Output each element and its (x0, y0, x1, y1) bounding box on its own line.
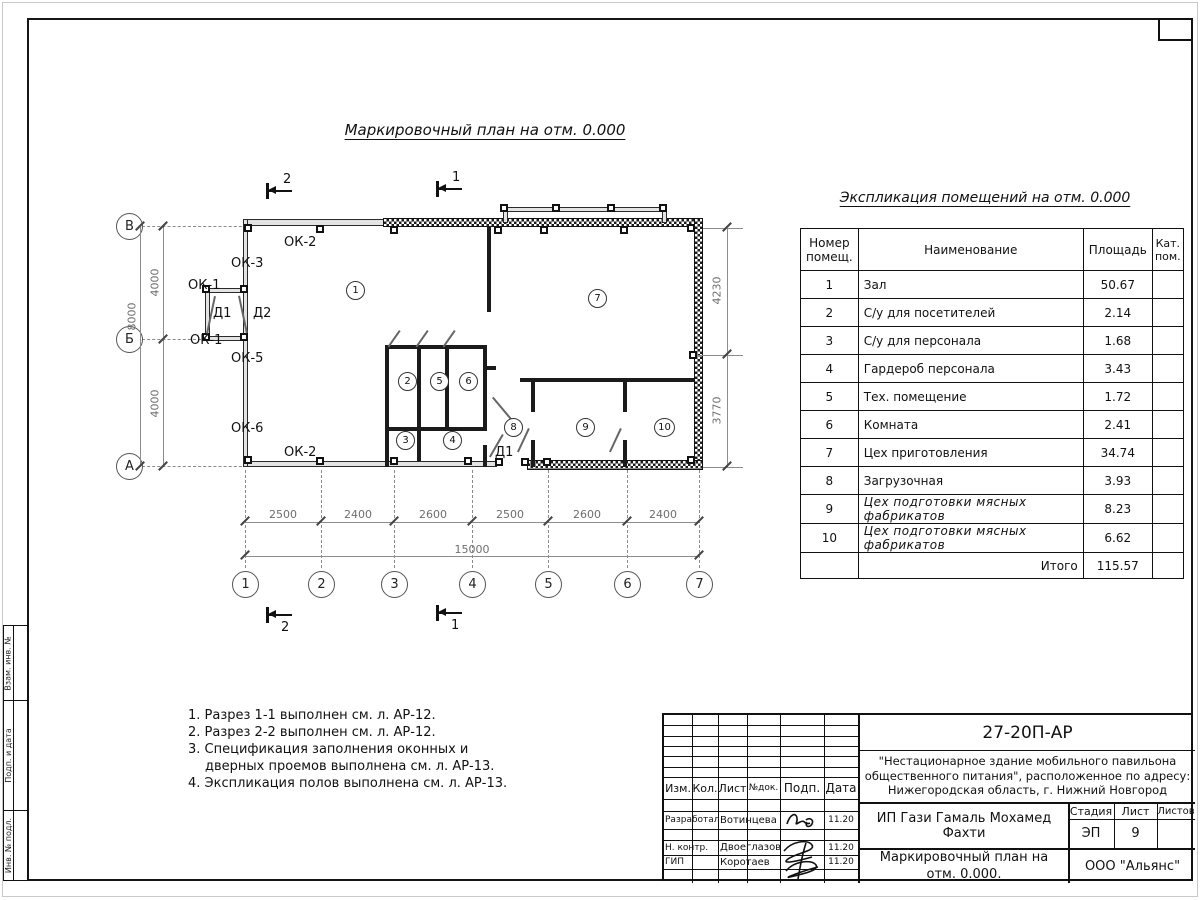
dim-2400-1: 2400 (328, 508, 388, 521)
table-row: 4Гардероб персонала3.43 (801, 355, 1184, 383)
room-mark-5: 5 (430, 372, 449, 391)
column-mark (521, 458, 529, 466)
column-mark (494, 226, 502, 234)
dim-2600-2: 2600 (557, 508, 617, 521)
room-mark-10: 10 (654, 418, 675, 437)
corner-stamp-box (1158, 18, 1193, 41)
dim-3770: 3770 (711, 391, 724, 431)
window-label-ok2-bottom: ОК-2 (284, 445, 316, 460)
table-row: 1Зал50.67 (801, 271, 1184, 299)
partition (623, 382, 627, 412)
door-label-d1-bottom: Д1 (495, 445, 513, 460)
tb-date-gip: 11.20 (824, 855, 858, 869)
column-mark (689, 351, 697, 359)
tb-col-kol: Кол. (692, 777, 718, 799)
partition (623, 440, 627, 467)
dim-2500-1: 2500 (253, 508, 313, 521)
column-mark (687, 224, 695, 232)
wall-right-hatched (694, 218, 703, 470)
notes-block: 1. Разрез 1-1 выполнен см. л. АР-12. 2. … (188, 708, 512, 792)
column-mark (316, 457, 324, 465)
tb-line (664, 799, 858, 800)
axis-bubble-3: 3 (381, 571, 408, 598)
explication-table: Номер помещ. Наименование Площадь Кат. п… (800, 228, 1184, 579)
partition (417, 431, 421, 461)
drawing-sheet: Взам. инв. № Подп. и дата Инв. № подл. М… (0, 0, 1200, 900)
tb-line (664, 829, 858, 830)
room-mark-3: 3 (396, 431, 415, 450)
total-label: Итого (858, 553, 1083, 579)
partition-tab (487, 366, 496, 370)
dim-line-total (245, 556, 699, 557)
tb-col-data: Дата (824, 777, 858, 799)
room-mark-6: 6 (459, 372, 478, 391)
tb-role-ncontr: Н. контр. (665, 840, 719, 855)
section-label-2-top: 2 (283, 172, 291, 187)
tb-col-podp: Подп. (780, 777, 824, 799)
column-mark (464, 457, 472, 465)
table-row: 6Комната2.41 (801, 411, 1184, 439)
window-label-ok1-top: ОК-1 (188, 278, 220, 293)
side-label-podp: Подп. и дата (4, 728, 13, 783)
section-arrow (438, 184, 446, 192)
room-mark-8: 8 (504, 418, 523, 437)
table-row: 8Загрузочная3.93 (801, 467, 1184, 495)
tb-line (664, 756, 858, 757)
title-block: Изм. Кол. Лист №док. Подп. Дата Разработ… (662, 713, 1193, 881)
total-value: 115.57 (1083, 553, 1152, 579)
partition (483, 345, 487, 430)
porch-wall-top (503, 207, 667, 212)
side-cell-blank-2 (13, 700, 28, 811)
partition (385, 345, 487, 349)
tb-line (664, 767, 858, 768)
dim-ext (697, 355, 743, 356)
tb-drawing-title: Маркировочный план на отм. 0.000. (864, 850, 1064, 883)
room-mark-2: 2 (398, 372, 417, 391)
column-mark (540, 226, 548, 234)
dim-4000-top: 4000 (149, 263, 162, 303)
column-mark (552, 204, 560, 212)
tb-stage-label: Стадия (1068, 803, 1114, 819)
tb-project-name: "Нестационарное здание мобильного павиль… (864, 752, 1191, 800)
tb-company: ООО "Альянс" (1070, 850, 1195, 883)
axis-bubble-2: 2 (308, 571, 335, 598)
window-label-ok3: ОК-3 (231, 256, 263, 271)
column-mark (659, 204, 667, 212)
tb-line (664, 746, 858, 747)
section-label-2-bottom: 2 (281, 620, 289, 635)
side-label-vzam: Взам. инв. № (4, 636, 13, 690)
section-arrow (268, 610, 276, 618)
tb-sheet-value: 9 (1114, 819, 1157, 848)
column-mark (240, 333, 248, 341)
tb-line (664, 725, 858, 726)
partition (385, 345, 389, 467)
column-mark (244, 224, 252, 232)
window-label-ok5: ОК-5 (231, 351, 263, 366)
tb-date-developer: 11.20 (824, 811, 858, 829)
column-mark (687, 456, 695, 464)
door-label-d2: Д2 (253, 306, 271, 321)
tb-stage-value: ЭП (1068, 819, 1114, 848)
room-mark-1: 1 (346, 281, 365, 300)
door-label-d1: Д1 (213, 306, 231, 321)
table-row: 3С/у для персонала1.68 (801, 327, 1184, 355)
plan-title: Маркировочный план на отм. 0.000 (300, 121, 670, 139)
window-label-ok2-top: ОК-2 (284, 235, 316, 250)
note-1: 1. Разрез 1-1 выполнен см. л. АР-12. (188, 708, 512, 725)
tb-col-list: Лист (718, 777, 747, 799)
dim-4230: 4230 (711, 271, 724, 311)
wall-bottom-hatched (527, 460, 703, 470)
tb-sheets-label: Листов (1157, 803, 1195, 819)
side-cell-blank-1 (13, 625, 28, 701)
signature-developer (784, 810, 822, 830)
tb-name-ncontr: Двоеглазов (720, 840, 780, 855)
dim-line (727, 228, 728, 468)
table-row: 7Цех приготовления34.74 (801, 439, 1184, 467)
tb-date-ncontr: 11.20 (824, 840, 858, 855)
wall-bottom-thin (243, 461, 497, 467)
partition (520, 378, 694, 382)
tb-name-developer: Вотинцева (720, 811, 778, 829)
column-mark (390, 457, 398, 465)
tb-name-gip: Коротаев (720, 855, 778, 869)
dim-line (140, 227, 141, 467)
table-row: 5Тех. помещение1.72 (801, 383, 1184, 411)
dim-line (163, 227, 164, 467)
partition (417, 349, 421, 430)
tb-doc-number: 27-20П-АР (860, 715, 1195, 750)
tb-line (664, 869, 858, 870)
column-mark (607, 204, 615, 212)
axis-bubble-1: 1 (232, 571, 259, 598)
tb-col-izm: Изм. (664, 777, 692, 799)
partition (483, 445, 487, 467)
explication-title: Экспликация помещений на отм. 0.000 (810, 190, 1160, 206)
col-header-num: Номер помещ. (801, 229, 859, 271)
col-header-area: Площадь (1083, 229, 1152, 271)
column-mark (500, 204, 508, 212)
column-mark (316, 225, 324, 233)
section-label-1-top: 1 (452, 170, 460, 185)
column-mark (620, 226, 628, 234)
partition (445, 349, 449, 430)
section-arrow (268, 186, 276, 194)
axis-bubble-5: 5 (535, 571, 562, 598)
window-label-ok1-bottom: ОК-1 (190, 333, 222, 348)
table-row: 10Цех подготовки мясных фабрикатов6.62 (801, 524, 1184, 553)
room-mark-7: 7 (588, 289, 607, 308)
window-label-ok6: ОК-6 (231, 421, 263, 436)
axis-bubble-7: 7 (686, 571, 713, 598)
col-header-name: Наименование (858, 229, 1083, 271)
partition (385, 427, 487, 431)
table-row: 2С/у для посетителей2.14 (801, 299, 1184, 327)
tb-line (664, 736, 858, 737)
tb-role-developer: Разработал (665, 811, 719, 829)
tb-role-gip: ГИП (665, 855, 719, 869)
note-2: 2. Разрез 2-2 выполнен см. л. АР-12. (188, 725, 512, 742)
side-label-inv: Инв. № подл. (4, 818, 13, 873)
signature-ncontr-gip (778, 837, 824, 881)
dim-2400-2: 2400 (633, 508, 693, 521)
axis-line-v (142, 226, 247, 227)
note-4: 4. Экспликация полов выполнена см. л. АР… (188, 776, 512, 793)
tb-sheet-label: Лист (1114, 803, 1157, 819)
table-header-row: Номер помещ. Наименование Площадь Кат. п… (801, 229, 1184, 271)
axis-line-a (142, 466, 247, 467)
section-label-1-bottom: 1 (451, 618, 459, 633)
wall-top-thin (243, 219, 385, 226)
dim-15000: 15000 (442, 543, 502, 556)
dim-8000: 8000 (126, 297, 139, 337)
side-cell-blank-3 (13, 810, 28, 881)
column-mark (240, 285, 248, 293)
column-mark (244, 456, 252, 464)
tb-col-ndok: №док. (747, 777, 780, 799)
col-header-cat: Кат. пом. (1152, 229, 1183, 271)
room-mark-9: 9 (576, 418, 595, 437)
note-3: 3. Спецификация заполнения оконных и две… (188, 742, 512, 776)
table-total-row: Итого115.57 (801, 553, 1184, 579)
dim-2500-2: 2500 (480, 508, 540, 521)
dim-2600-1: 2600 (403, 508, 463, 521)
axis-bubble-6: 6 (614, 571, 641, 598)
partition (531, 382, 535, 412)
section-arrow (438, 608, 446, 616)
partition (531, 440, 535, 467)
partition (487, 226, 491, 312)
column-mark (390, 226, 398, 234)
table-row: 9Цех подготовки мясных фабрикатов8.23 (801, 495, 1184, 524)
axis-bubble-4: 4 (459, 571, 486, 598)
column-mark (543, 458, 551, 466)
dim-4000-bottom: 4000 (149, 384, 162, 424)
tb-client: ИП Гази Гамаль Мохамед Фахти (860, 804, 1068, 848)
room-mark-4: 4 (443, 431, 462, 450)
